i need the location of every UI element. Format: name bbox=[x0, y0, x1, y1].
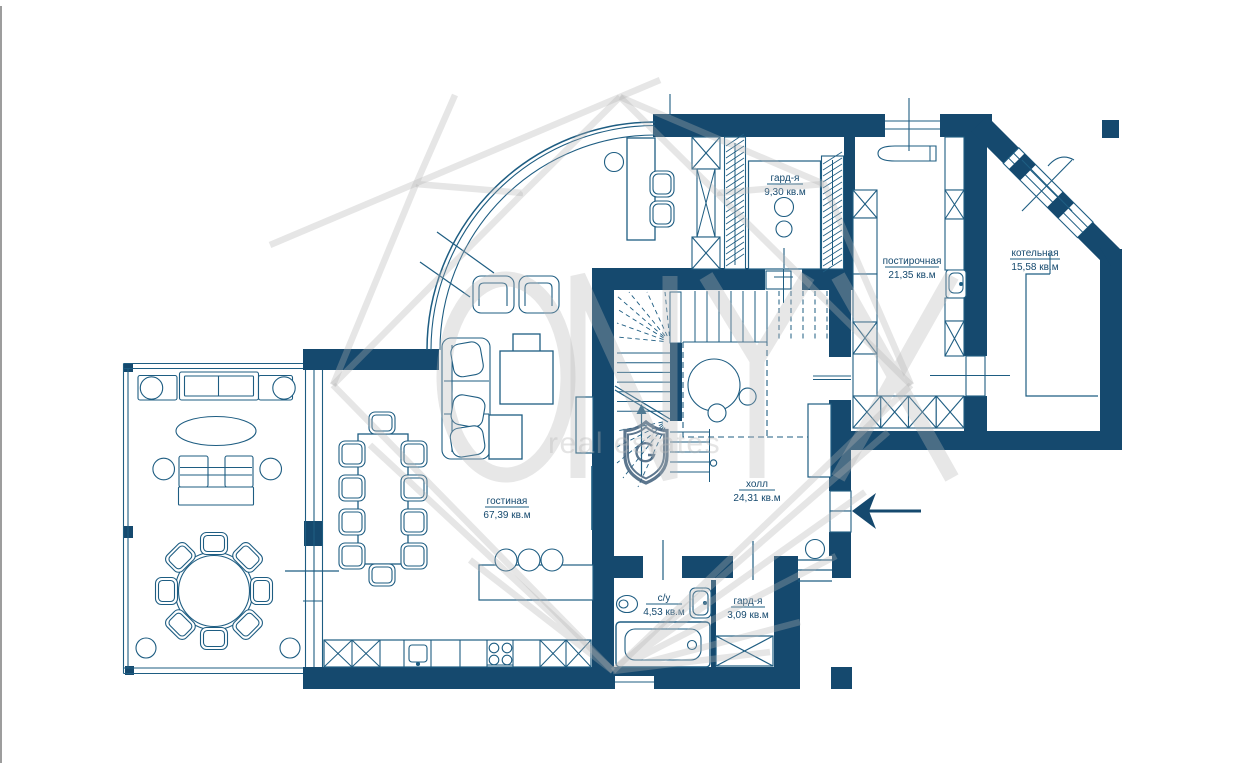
svg-text:холл: холл bbox=[746, 479, 768, 490]
svg-text:котельная: котельная bbox=[1011, 248, 1058, 259]
svg-text:67,39 кв.м: 67,39 кв.м bbox=[483, 510, 530, 521]
svg-text:гостиная: гостиная bbox=[487, 496, 528, 507]
svg-text:15,58 кв.м: 15,58 кв.м bbox=[1011, 262, 1058, 273]
svg-text:постирочная: постирочная bbox=[883, 256, 942, 267]
svg-text:с/у: с/у bbox=[658, 593, 671, 604]
svg-text:24,31 кв.м: 24,31 кв.м bbox=[733, 493, 780, 504]
svg-text:real estates: real estates bbox=[548, 427, 721, 460]
svg-text:21,35 кв.м: 21,35 кв.м bbox=[888, 270, 935, 281]
